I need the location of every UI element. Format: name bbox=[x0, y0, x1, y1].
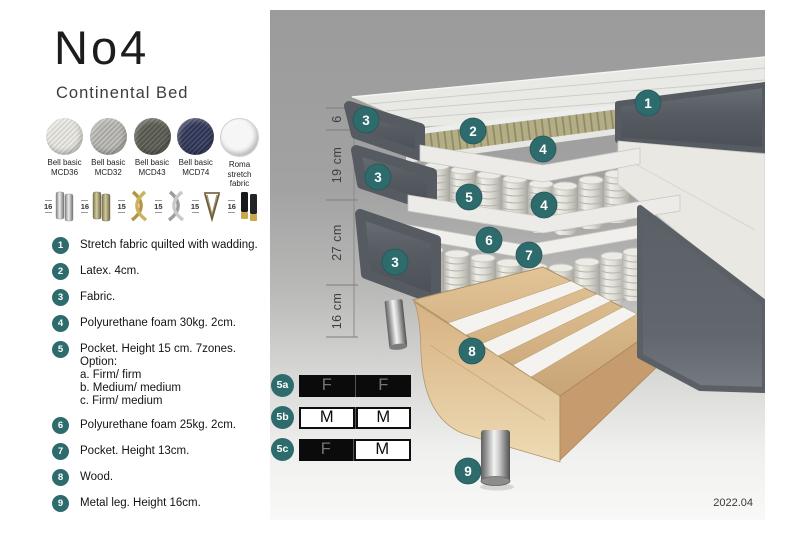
dimension-label: 19 cm bbox=[330, 147, 344, 184]
tick-mark bbox=[192, 200, 199, 201]
tick-mark bbox=[118, 212, 125, 213]
legend-text: Polyurethane foam 25kg. 2cm. bbox=[80, 417, 236, 432]
leg-height-value: 15 bbox=[117, 203, 125, 210]
firmness-bar: FM bbox=[299, 439, 411, 461]
leg-option: 16 bbox=[228, 190, 260, 222]
leg-height: 16 bbox=[44, 200, 52, 213]
dimension-label: 16 cm bbox=[330, 293, 344, 330]
firmness-cell: F bbox=[299, 439, 353, 461]
leg-option: 15 bbox=[117, 190, 149, 222]
fabric-swatch-label: Bell basicMCD74 bbox=[175, 158, 216, 177]
tick-mark bbox=[192, 212, 199, 213]
legend-number-badge: 5 bbox=[52, 341, 69, 358]
legend-number-badge: 3 bbox=[52, 289, 69, 306]
leg-height: 16 bbox=[81, 200, 89, 213]
svg-text:7: 7 bbox=[525, 248, 533, 263]
fabric-swatch-label: Bell basicMCD43 bbox=[132, 158, 173, 177]
fabric-swatch-label: Bell basicMCD36 bbox=[44, 158, 85, 177]
tick-mark bbox=[155, 200, 162, 201]
dimension-guide: 619 cm27 cm16 cm bbox=[326, 108, 358, 337]
legend-text-wrap: Polyurethane foam 25kg. 2cm. bbox=[80, 417, 236, 432]
legend-number-badge: 8 bbox=[52, 469, 69, 486]
tick-mark bbox=[45, 212, 52, 213]
rear-leg bbox=[384, 299, 407, 351]
legend-text: Wood. bbox=[80, 469, 113, 484]
callout-badge-4: 4 bbox=[531, 192, 557, 218]
legend-item: 3Fabric. bbox=[52, 289, 267, 306]
firmness-row: 5bMM bbox=[271, 406, 411, 429]
top-mattress-layer bbox=[349, 57, 765, 163]
legend-text-wrap: Polyurethane foam 30kg. 2cm. bbox=[80, 315, 236, 330]
firmness-id-badge: 5a bbox=[271, 374, 294, 397]
legend-list: 1Stretch fabric quilted with wadding.2La… bbox=[52, 237, 267, 521]
firmness-cell: M bbox=[299, 407, 355, 429]
callout-badge-8: 8 bbox=[459, 338, 485, 364]
front-leg bbox=[480, 430, 514, 491]
firmness-cell: F bbox=[356, 375, 412, 397]
tick-mark bbox=[81, 212, 88, 213]
fabric-swatch: Bell basicMCD32 bbox=[88, 118, 129, 189]
firmness-cell: M bbox=[356, 407, 412, 429]
legend-text: Latex. 4cm. bbox=[80, 263, 139, 278]
tick-mark bbox=[155, 212, 162, 213]
leg-option: 16 bbox=[44, 190, 76, 222]
svg-text:3: 3 bbox=[391, 255, 399, 270]
leg-height-value: 16 bbox=[44, 203, 52, 210]
legend-sub-option: c. Firm/ medium bbox=[80, 395, 267, 408]
callout-badge-2: 2 bbox=[460, 118, 486, 144]
fabric-swatch: Romastretch fabric bbox=[219, 118, 260, 189]
legend-number-badge: 7 bbox=[52, 443, 69, 460]
leg-option: 15 bbox=[191, 190, 223, 222]
callout-badge-3: 3 bbox=[353, 107, 379, 133]
leg-height: 15 bbox=[117, 200, 125, 213]
leg-height-value: 15 bbox=[154, 203, 162, 210]
tick-mark bbox=[228, 212, 235, 213]
callout-badge-6: 6 bbox=[476, 227, 502, 253]
leg-twist-gold-icon bbox=[128, 190, 150, 222]
legend-text: Fabric. bbox=[80, 289, 115, 304]
legend-item: 2Latex. 4cm. bbox=[52, 263, 267, 280]
svg-text:4: 4 bbox=[540, 198, 548, 213]
legend-item: 4Polyurethane foam 30kg. 2cm. bbox=[52, 315, 267, 332]
legend-item: 7Pocket. Height 13cm. bbox=[52, 443, 267, 460]
callout-badge-7: 7 bbox=[516, 242, 542, 268]
firmness-cell: M bbox=[354, 439, 412, 461]
leg-height: 16 bbox=[228, 200, 236, 213]
leg-cyl-blackgold-icon bbox=[238, 190, 260, 222]
callout-badge-5: 5 bbox=[456, 184, 482, 210]
leg-cyl-brass-icon bbox=[91, 190, 113, 222]
dimension-label: 27 cm bbox=[330, 224, 344, 261]
leg-options-row: 16 16 15 15 15 16 bbox=[44, 184, 260, 228]
legend-number-badge: 4 bbox=[52, 315, 69, 332]
legend-text: Polyurethane foam 30kg. 2cm. bbox=[80, 315, 236, 330]
legend-item: 6Polyurethane foam 25kg. 2cm. bbox=[52, 417, 267, 434]
fabric-swatch-circle bbox=[177, 118, 214, 155]
svg-text:6: 6 bbox=[485, 233, 493, 248]
legend-number-badge: 6 bbox=[52, 417, 69, 434]
firmness-id-badge: 5c bbox=[271, 438, 294, 461]
fabric-swatch-row: Bell basicMCD36Bell basicMCD32Bell basic… bbox=[44, 118, 260, 189]
legend-item: 1Stretch fabric quilted with wadding. bbox=[52, 237, 267, 254]
legend-text-wrap: Pocket. Height 15 cm. 7zones. Option:a. … bbox=[80, 341, 267, 408]
legend-text: Metal leg. Height 16cm. bbox=[80, 495, 201, 510]
product-title: No4 bbox=[54, 24, 149, 71]
callout-badge-9: 9 bbox=[455, 458, 481, 484]
leg-cyl-silver-icon bbox=[54, 190, 76, 222]
firmness-bar: MM bbox=[299, 407, 411, 429]
legend-text-wrap: Fabric. bbox=[80, 289, 115, 304]
firmness-row: 5aFF bbox=[271, 374, 411, 397]
tick-mark bbox=[81, 200, 88, 201]
callout-badge-3: 3 bbox=[382, 249, 408, 275]
tick-mark bbox=[45, 200, 52, 201]
firmness-cell: F bbox=[299, 375, 355, 397]
version-label: 2022.04 bbox=[713, 497, 753, 509]
svg-text:3: 3 bbox=[362, 113, 370, 128]
svg-text:2: 2 bbox=[469, 124, 477, 139]
left-panel: No4 Continental Bed Bell basicMCD36Bell … bbox=[0, 0, 270, 533]
firmness-id-badge: 5b bbox=[271, 406, 294, 429]
legend-item: 8Wood. bbox=[52, 469, 267, 486]
firmness-options: 5aFF5bMM5cFM bbox=[271, 374, 411, 470]
fabric-swatch: Bell basicMCD43 bbox=[132, 118, 173, 189]
leg-option: 15 bbox=[154, 190, 186, 222]
legend-text-wrap: Metal leg. Height 16cm. bbox=[80, 495, 201, 510]
callout-badge-3: 3 bbox=[365, 164, 391, 190]
svg-text:1: 1 bbox=[644, 96, 652, 111]
svg-text:8: 8 bbox=[468, 344, 476, 359]
tick-mark bbox=[228, 200, 235, 201]
svg-text:9: 9 bbox=[464, 464, 472, 479]
callout-badge-1: 1 bbox=[635, 90, 661, 116]
legend-item: 9Metal leg. Height 16cm. bbox=[52, 495, 267, 512]
leg-height-value: 16 bbox=[228, 203, 236, 210]
callout-badge-4: 4 bbox=[530, 136, 556, 162]
legend-text-wrap: Stretch fabric quilted with wadding. bbox=[80, 237, 258, 252]
dimension-label: 6 bbox=[330, 115, 344, 122]
fabric-swatch-circle bbox=[220, 118, 259, 157]
legend-number-badge: 2 bbox=[52, 263, 69, 280]
legend-sub-option: b. Medium/ medium bbox=[80, 382, 267, 395]
legend-text: Stretch fabric quilted with wadding. bbox=[80, 237, 258, 252]
leg-height: 15 bbox=[191, 200, 199, 213]
svg-text:5: 5 bbox=[465, 190, 473, 205]
tick-mark bbox=[118, 200, 125, 201]
legend-text-wrap: Wood. bbox=[80, 469, 113, 484]
fabric-swatch-circle bbox=[134, 118, 171, 155]
leg-height-value: 15 bbox=[191, 203, 199, 210]
leg-twist-silver-icon bbox=[165, 190, 187, 222]
legend-item: 5Pocket. Height 15 cm. 7zones. Option:a.… bbox=[52, 341, 267, 408]
firmness-bar: FF bbox=[299, 375, 411, 397]
leg-hairpin-icon bbox=[201, 190, 223, 222]
legend-text: Pocket. Height 15 cm. 7zones. Option: bbox=[80, 341, 267, 369]
fabric-swatch-label: Bell basicMCD32 bbox=[88, 158, 129, 177]
svg-text:4: 4 bbox=[539, 142, 547, 157]
fabric-swatch-circle bbox=[46, 118, 83, 155]
legend-sub-option: a. Firm/ firm bbox=[80, 369, 267, 382]
legend-text-wrap: Latex. 4cm. bbox=[80, 263, 139, 278]
legend-text-wrap: Pocket. Height 13cm. bbox=[80, 443, 189, 458]
page: No4 Continental Bed Bell basicMCD36Bell … bbox=[0, 0, 800, 533]
leg-option: 16 bbox=[81, 190, 113, 222]
leg-height: 15 bbox=[154, 200, 162, 213]
legend-number-badge: 1 bbox=[52, 237, 69, 254]
fabric-swatch: Bell basicMCD74 bbox=[175, 118, 216, 189]
legend-text: Pocket. Height 13cm. bbox=[80, 443, 189, 458]
fabric-swatch-circle bbox=[90, 118, 127, 155]
legend-number-badge: 9 bbox=[52, 495, 69, 512]
firmness-row: 5cFM bbox=[271, 438, 411, 461]
svg-text:3: 3 bbox=[374, 170, 382, 185]
leg-height-value: 16 bbox=[81, 203, 89, 210]
fabric-swatch: Bell basicMCD36 bbox=[44, 118, 85, 189]
product-subtitle: Continental Bed bbox=[56, 84, 188, 103]
